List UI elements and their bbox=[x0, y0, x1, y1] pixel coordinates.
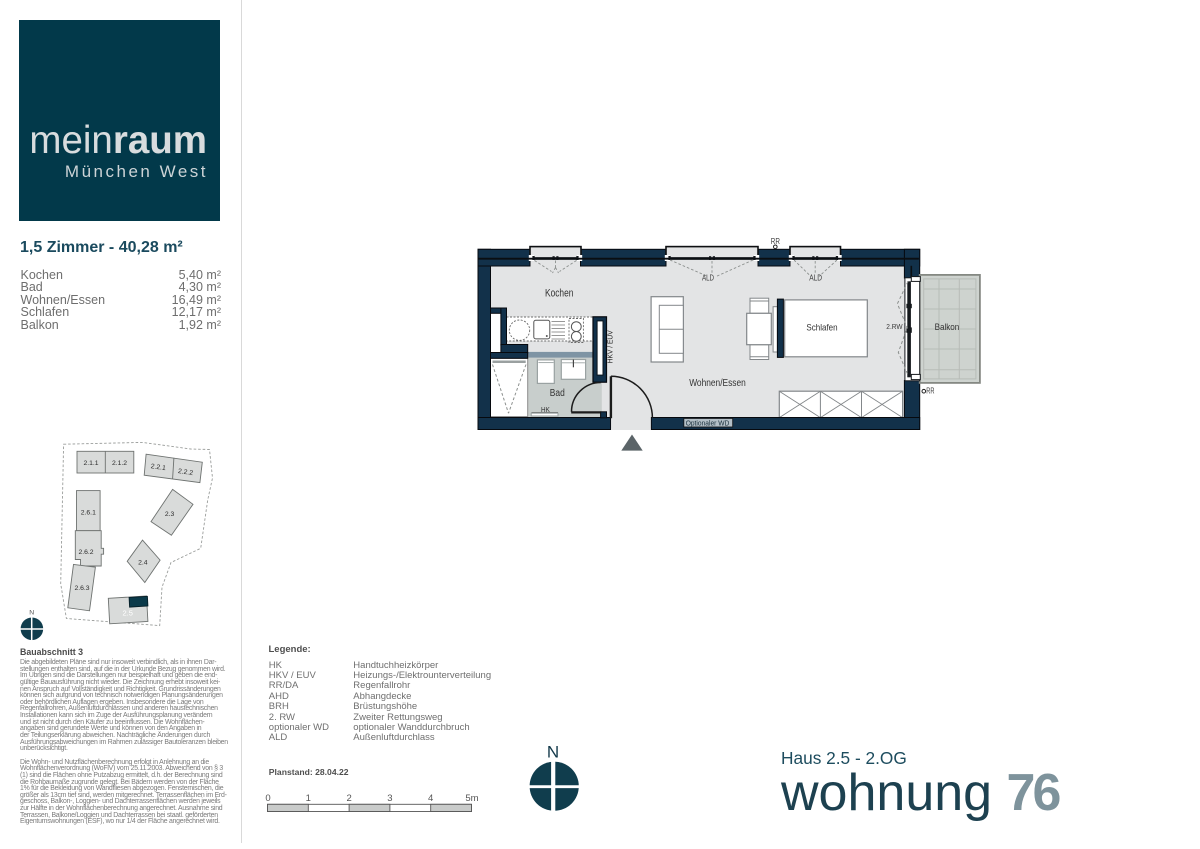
svg-text:2.6.1: 2.6.1 bbox=[81, 510, 96, 517]
svg-text:2.6.3: 2.6.3 bbox=[74, 585, 89, 592]
svg-text:2.1.2: 2.1.2 bbox=[112, 460, 127, 467]
svg-text:Wohnen/Essen: Wohnen/Essen bbox=[689, 378, 746, 389]
svg-text:ALD: ALD bbox=[702, 274, 714, 283]
svg-text:2.RW: 2.RW bbox=[886, 322, 903, 331]
svg-text:N: N bbox=[29, 609, 34, 616]
svg-text:2.1.1: 2.1.1 bbox=[83, 460, 98, 467]
svg-text:ALD: ALD bbox=[809, 274, 822, 283]
svg-text:Schlafen: Schlafen bbox=[806, 322, 837, 333]
svg-text:2.4: 2.4 bbox=[138, 560, 148, 567]
svg-text:2.3: 2.3 bbox=[165, 511, 175, 518]
svg-text:2.5: 2.5 bbox=[122, 608, 132, 617]
svg-text:0: 0 bbox=[265, 793, 270, 804]
svg-text:5m: 5m bbox=[465, 793, 478, 804]
svg-text:4: 4 bbox=[428, 793, 433, 804]
svg-text:Kochen: Kochen bbox=[545, 287, 573, 299]
svg-text:Balkon: Balkon bbox=[935, 322, 960, 332]
svg-text:Optionaler WD: Optionaler WD bbox=[686, 419, 730, 428]
svg-text:RR: RR bbox=[771, 237, 780, 246]
svg-text:2: 2 bbox=[346, 793, 351, 804]
svg-text:2.6.2: 2.6.2 bbox=[78, 549, 93, 556]
svg-text:RR: RR bbox=[926, 387, 934, 396]
svg-text:3: 3 bbox=[387, 793, 392, 804]
svg-text:1: 1 bbox=[306, 793, 311, 804]
svg-text:N: N bbox=[547, 743, 559, 762]
svg-text:HKV / EUV: HKV / EUV bbox=[606, 330, 615, 363]
svg-text:Bad: Bad bbox=[550, 388, 565, 399]
